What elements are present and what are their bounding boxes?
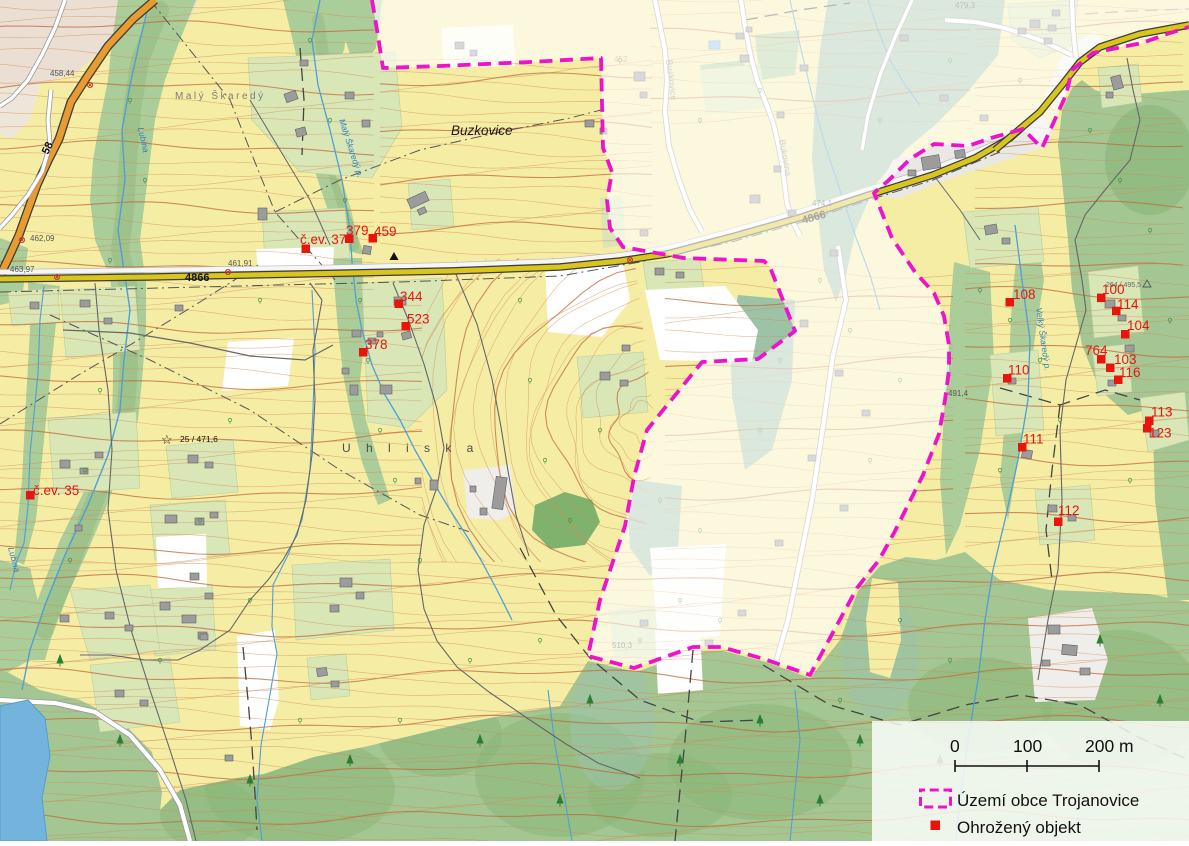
- svg-text:123: 123: [1149, 426, 1172, 441]
- svg-text:462,09: 462,09: [30, 234, 55, 243]
- svg-text:200 m: 200 m: [1085, 736, 1134, 756]
- svg-text:463,97: 463,97: [10, 265, 35, 274]
- svg-text:108: 108: [1013, 287, 1036, 302]
- svg-text:114: 114: [1117, 297, 1139, 312]
- svg-text:110: 110: [1008, 363, 1030, 378]
- svg-text:458,44: 458,44: [50, 69, 75, 78]
- svg-text:459: 459: [374, 224, 397, 239]
- svg-text:461,91: 461,91: [228, 259, 253, 268]
- svg-text:4866: 4866: [185, 272, 209, 284]
- svg-text:113: 113: [1151, 405, 1173, 420]
- svg-text:Buzkovice: Buzkovice: [451, 123, 513, 138]
- svg-text:č.ev. 37: č.ev. 37: [300, 232, 346, 247]
- svg-text:U h l i s k a: U h l i s k a: [342, 441, 479, 455]
- svg-text:Území obce Trojanovice: Území obce Trojanovice: [957, 791, 1139, 810]
- svg-text:Ohrožený objekt: Ohrožený objekt: [957, 818, 1081, 837]
- svg-text:25 / 471,6: 25 / 471,6: [180, 434, 218, 444]
- svg-text:Malý Škaredý: Malý Škaredý: [175, 89, 266, 102]
- svg-text:523: 523: [407, 312, 430, 327]
- svg-text:0: 0: [950, 736, 960, 756]
- svg-text:764: 764: [1085, 343, 1108, 358]
- svg-text:112: 112: [1058, 503, 1080, 518]
- svg-text:344: 344: [400, 289, 423, 304]
- svg-text:491,4: 491,4: [948, 389, 969, 398]
- svg-text:111: 111: [1023, 432, 1044, 447]
- svg-text:☆: ☆: [161, 432, 173, 447]
- svg-text:378: 378: [365, 337, 388, 352]
- svg-text:č.ev. 35: č.ev. 35: [33, 483, 79, 498]
- svg-text:100: 100: [1013, 736, 1042, 756]
- svg-text:100: 100: [1102, 282, 1125, 297]
- svg-text:104: 104: [1127, 318, 1150, 333]
- svg-text:379: 379: [346, 223, 369, 238]
- svg-text:116: 116: [1119, 365, 1141, 380]
